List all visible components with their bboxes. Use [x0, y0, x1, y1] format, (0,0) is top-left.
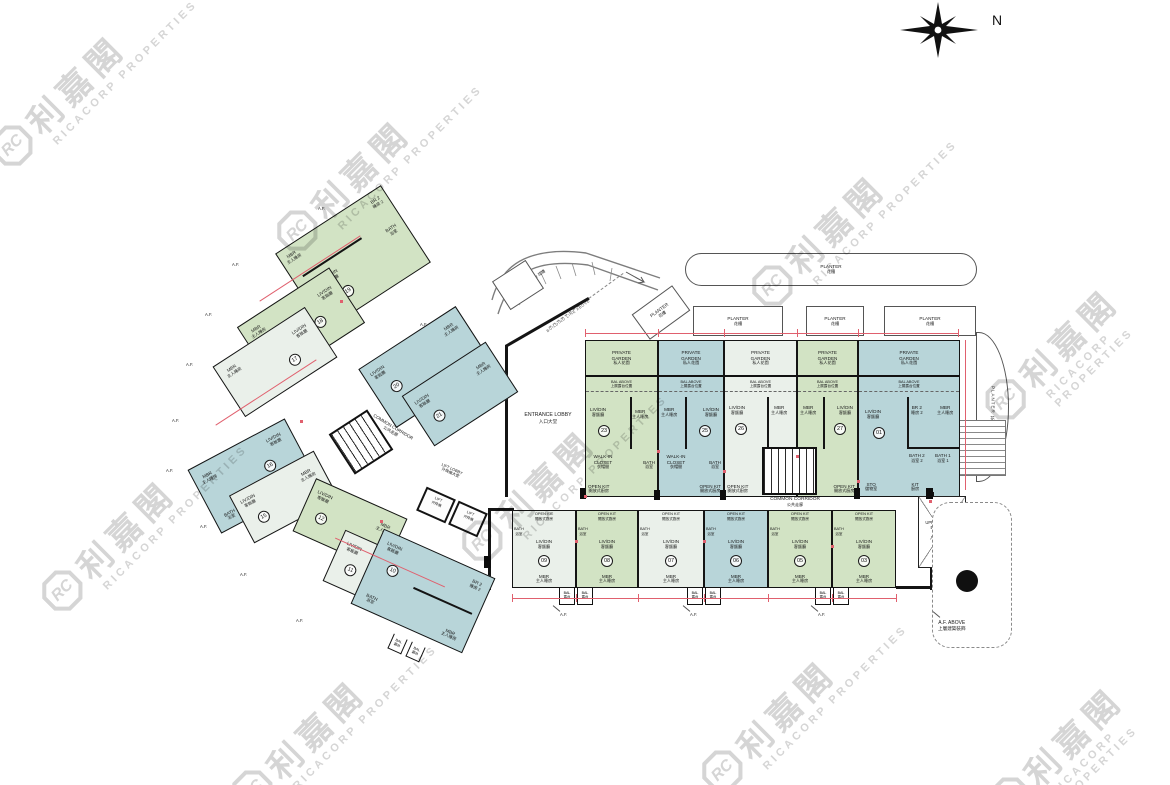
- dimension-marker: [723, 470, 726, 473]
- dimension-tick: [797, 329, 798, 337]
- lobby-west-wall: [505, 345, 508, 497]
- unit-number-03: 03: [858, 555, 870, 567]
- dimension-marker: [380, 520, 383, 523]
- dimension-marker: [340, 300, 343, 303]
- compass-rose-icon: [900, 2, 982, 60]
- dimension-marker: [929, 500, 932, 503]
- room-bath: BATH浴室: [770, 527, 780, 536]
- column: [926, 488, 933, 499]
- af-column-circle: [956, 570, 978, 592]
- room-sto: STO儲物室: [865, 482, 877, 492]
- unit-number-01: 01: [873, 427, 885, 439]
- room-walkin: WALK-IN CLOSET衣帽間: [661, 454, 691, 470]
- room-br2: BR 2睡房 2: [469, 578, 484, 592]
- unit-03: OPEN KIT開放式廚房 BATH浴室 LIV/DIN客飯廳 03 MBR主人…: [832, 510, 896, 588]
- dimension-tick: [512, 594, 513, 602]
- room-livdin: LIV/DIN客飯廳: [705, 539, 767, 549]
- column: [654, 490, 660, 500]
- room-openkit: OPEN KIT開放式廚房: [769, 512, 831, 521]
- watermark: RC利嘉閣 RICACORP PROPERTIES: [691, 590, 910, 785]
- room-mbr: MBR主人睡房: [472, 359, 491, 377]
- room-livdin: LIV/DIN客飯廳: [837, 405, 853, 415]
- unit-05: OPEN KIT開放式廚房 BATH浴室 LIV/DIN客飯廳 05 MBR主人…: [768, 510, 832, 588]
- room-mbr: MBR主人睡房: [513, 574, 575, 584]
- room-bath: BATH浴室: [709, 460, 721, 470]
- bal-above: BAL ABOVE上層露台位置: [859, 377, 959, 392]
- unit-08: OPEN KIT開放式廚房 BATH浴室 LIV/DIN客飯廳 08 MBR主人…: [576, 510, 638, 588]
- room-mbr: MBR主人睡房: [769, 574, 831, 584]
- room-livdin: LIV/DIN客飯廳: [865, 409, 881, 419]
- inner-wall: [907, 397, 909, 447]
- af-label: A.F.: [690, 612, 697, 617]
- inner-wall: [413, 587, 472, 614]
- room-openkit: OPEN KIT開放式廚房: [700, 484, 721, 494]
- room-openkit: OPEN KIT開放式廚房: [639, 512, 703, 521]
- dimension-tick: [832, 594, 833, 602]
- dimension-line: [585, 333, 958, 334]
- inner-wall: [907, 447, 959, 449]
- room-bath: BATH浴室: [578, 527, 588, 536]
- private-garden: PRIVATE GARDEN私人花園: [725, 341, 796, 377]
- room-livdin: LIV/DIN客飯廳: [291, 323, 310, 341]
- room-livdin: LIV/DIN客飯廳: [384, 541, 403, 557]
- af-label: A.F.: [560, 612, 567, 617]
- dimension-tick: [576, 594, 577, 602]
- af-label: A.F.: [296, 618, 303, 623]
- room-openkit: OPEN KIT開放式廚房: [833, 512, 895, 521]
- unit-number-08: 08: [601, 555, 613, 567]
- private-garden: PRIVATE GARDEN私人花園: [859, 341, 959, 377]
- bal-above: BAL ABOVE上層露台位置: [725, 377, 796, 392]
- planter-box-2: PLANTER花槽: [806, 306, 864, 336]
- room-bath1: BATH 1浴室 1: [935, 453, 951, 463]
- dimension-marker: [857, 480, 860, 483]
- af-label: A.F.: [205, 312, 212, 317]
- room-livdin: LIV/DIN客飯廳: [729, 405, 745, 415]
- unit-number-05: 05: [794, 555, 806, 567]
- room-mbr: MBR主人睡房: [440, 626, 459, 642]
- dimension-marker: [831, 545, 834, 548]
- bal-above: BAL ABOVE上層露台位置: [798, 377, 857, 392]
- room-livdin: LIV/DIN客飯廳: [833, 539, 895, 549]
- compass-north-label: N: [992, 12, 1002, 28]
- floor-plan-canvas: N PLANTER花槽 PLANTER花槽 PLANTER花槽 PLANTER花…: [0, 0, 1170, 785]
- room-openkit: OPEN KIT開放式廚房: [705, 512, 767, 521]
- dimension-line: [965, 340, 966, 490]
- unit-number-06: 06: [730, 555, 742, 567]
- leader-line: [683, 605, 691, 612]
- balcony: BAL露台: [559, 588, 575, 605]
- unit-number-09: 09: [538, 555, 550, 567]
- stairs-east: [762, 447, 817, 495]
- af-label: A.F.: [232, 262, 239, 267]
- balcony: BAL露台: [833, 588, 849, 605]
- room-bath2: BATH 2浴室 2: [909, 453, 925, 463]
- lift-lobby-label: LIFT LOBBY升降機大堂: [439, 462, 463, 480]
- unit-number-26: 26: [735, 423, 747, 435]
- room-livdin: LIV/DIN客飯廳: [369, 364, 388, 382]
- room-openkit: OPEN KIT開放式廚房: [727, 484, 748, 494]
- watermark: RC利嘉閣 RICACORP PROPERTIES: [221, 610, 440, 785]
- unit-number-21: 21: [431, 407, 448, 424]
- dimension-marker: [575, 540, 578, 543]
- room-mbr: MBR主人睡房: [771, 405, 787, 415]
- balcony: BAL露台: [705, 588, 721, 605]
- balcony: BAL露台: [687, 588, 703, 605]
- dimension-marker: [657, 450, 660, 453]
- private-garden: PRIVATE GARDEN私人花園: [798, 341, 857, 377]
- unit-25: PRIVATE GARDEN私人花園 BAL ABOVE上層露台位置 MBR主人…: [658, 340, 724, 497]
- room-livdin: LIV/DIN客飯廳: [769, 539, 831, 549]
- watermark: RC利嘉閣 RICACORP PROPERTIES: [978, 656, 1166, 785]
- unit-number-17: 17: [287, 351, 304, 368]
- unit-number-20: 20: [388, 378, 405, 395]
- dimension-tick: [858, 329, 859, 337]
- room-mbr: MBR主人睡房: [223, 362, 242, 380]
- common-corridor-label-east: COMMON CORRIDOR公共走廊: [735, 497, 855, 508]
- room-mbr: MBR主人睡房: [440, 320, 459, 338]
- unit-06: OPEN KIT開放式廚房 BATH浴室 LIV/DIN客飯廳 06 MBR主人…: [704, 510, 768, 588]
- balcony: BAL露台: [577, 588, 593, 605]
- watermark: RC利嘉閣 RICACORP PROPERTIES: [741, 105, 960, 324]
- dimension-tick: [704, 594, 705, 602]
- unit-number-07: 07: [665, 555, 677, 567]
- watermark: RC利嘉閣 RICACORP PROPERTIES: [974, 255, 1166, 447]
- af-label: A.F.: [186, 362, 193, 367]
- room-kit: KIT廚房: [911, 482, 919, 492]
- room-livdin: LIV/DIN客飯廳: [265, 432, 284, 449]
- leader-line: [811, 605, 819, 612]
- room-livdin: LIV/DIN客飯廳: [315, 489, 334, 505]
- unit-number-12: 12: [313, 511, 329, 527]
- dimension-tick: [768, 594, 769, 602]
- room-bath: BATH浴室: [384, 223, 400, 238]
- unit-number-27: 27: [834, 423, 846, 435]
- room-mbr: MBR主人睡房: [577, 574, 637, 584]
- room-bath: BATH浴室: [834, 527, 844, 536]
- dimension-tick: [585, 329, 586, 337]
- af-label: A.F.: [818, 612, 825, 617]
- room-livdin: LIV/DIN客飯廳: [703, 407, 719, 417]
- room-mbr: MBR主人睡房: [705, 574, 767, 584]
- dimension-marker: [584, 495, 587, 498]
- private-garden: PRIVATE GARDEN私人花園: [659, 341, 723, 377]
- dimension-tick: [958, 329, 959, 337]
- dimension-marker: [703, 540, 706, 543]
- watermark: RC利嘉閣 RICACORP PROPERTIES: [0, 0, 200, 184]
- unit-number-25: 25: [699, 425, 711, 437]
- af-label: A.F.: [240, 572, 247, 577]
- leader-line: [553, 605, 561, 612]
- unit-number-11: 11: [342, 562, 358, 578]
- unit-number-15: 15: [256, 509, 272, 525]
- column: [720, 490, 726, 500]
- wall: [896, 586, 933, 589]
- dimension-tick: [658, 329, 659, 337]
- room-openkit: OPEN KIT開放式廚房: [577, 512, 637, 521]
- room-mbr: MBR主人睡房: [639, 574, 703, 584]
- room-bath: BATH浴室: [640, 527, 650, 536]
- room-openkit: OPEN KIT開放式廚房: [834, 484, 855, 494]
- room-livdin: LIV/DIN客飯廳: [316, 285, 335, 303]
- room-br2: BR 2睡房 2: [911, 405, 923, 415]
- room-bath: BATH浴室: [643, 460, 655, 470]
- room-livdin: LIV/DIN客飯廳: [639, 539, 703, 549]
- room-mbr: MBR主人睡房: [661, 407, 677, 417]
- room-bath: BATH浴室: [706, 527, 716, 536]
- planter-box-3: PLANTER花槽: [884, 306, 976, 336]
- room-livdin: LIV/DIN客飯廳: [414, 393, 433, 411]
- unit-07: OPEN KIT開放式廚房 BATH浴室 LIV/DIN客飯廳 07 MBR主人…: [638, 510, 704, 588]
- af-above-label: A.F. ABOVE上層建築裝飾: [938, 620, 966, 632]
- room-bath: BATH浴室: [363, 592, 378, 606]
- room-mbr: MBR主人睡房: [833, 574, 895, 584]
- balcony: BAL露台: [815, 588, 831, 605]
- room-mbr: MBR主人睡房: [937, 405, 953, 415]
- room-mbr: MBR主人睡房: [800, 405, 816, 415]
- dimension-marker: [300, 420, 303, 423]
- af-label: A.F.: [172, 418, 179, 423]
- room-openkit: OPEN KIT開放式廚房: [588, 484, 609, 494]
- af-label: A.F.: [420, 322, 427, 327]
- room-livdin: LIV/DIN客飯廳: [239, 493, 258, 510]
- dimension-marker: [796, 455, 799, 458]
- af-label: A.F.: [200, 524, 207, 529]
- inner-wall: [685, 397, 687, 449]
- inner-wall: [823, 397, 825, 449]
- room-livdin: LIV/DIN客飯廳: [577, 539, 637, 549]
- dimension-tick: [638, 594, 639, 602]
- inner-wall: [767, 397, 769, 449]
- column: [854, 488, 860, 499]
- unit-01: PRIVATE GARDEN私人花園 BAL ABOVE上層露台位置 LIV/D…: [858, 340, 960, 497]
- dimension-tick: [896, 594, 897, 602]
- dimension-tick: [724, 329, 725, 337]
- bal-above: BAL ABOVE上層露台位置: [659, 377, 723, 392]
